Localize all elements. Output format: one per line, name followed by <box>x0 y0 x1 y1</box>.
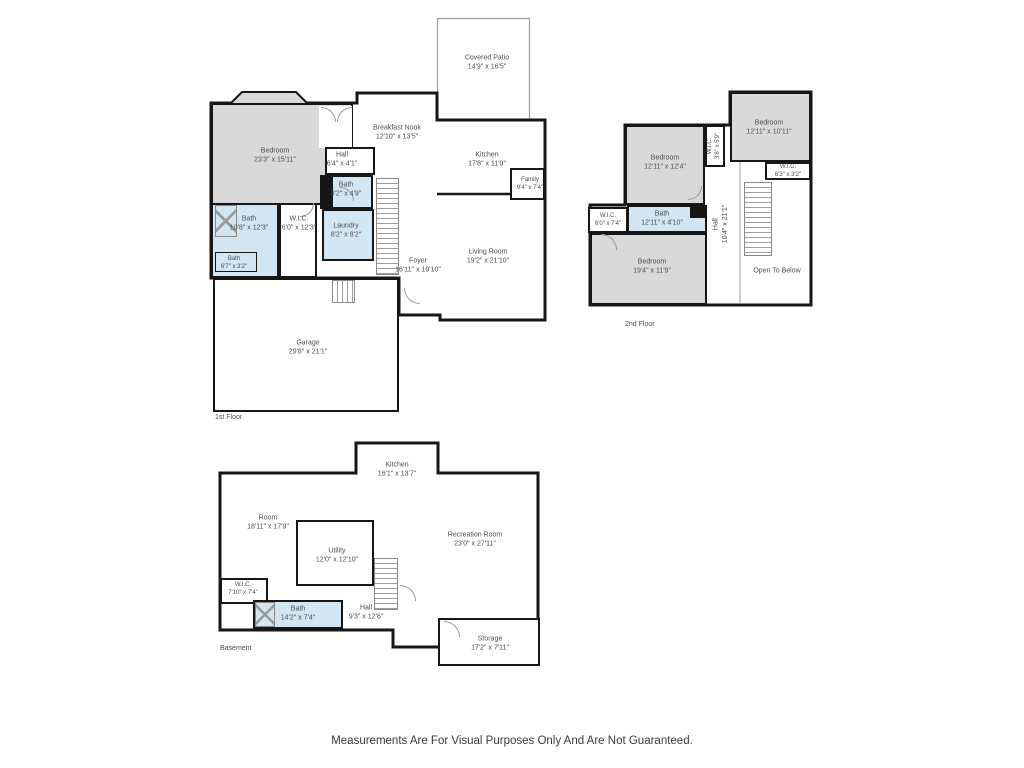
disclaimer-text: Measurements Are For Visual Purposes Onl… <box>0 735 1024 747</box>
floor-label-2nd: 2nd Floor <box>625 321 655 328</box>
label-utility-b: Utility 12'0" x 12'10" <box>316 547 358 566</box>
label-living-room-1f: Living Room 19'2" x 21'10" <box>467 248 509 267</box>
label-hall-2f: Hall 10'4" x 21'1" <box>712 205 731 243</box>
stairs-2f <box>744 182 772 256</box>
label-bedroom-c-2f: Bedroom 19'4" x 11'9" <box>633 258 671 277</box>
label-bath-main-1f: Bath 10'8" x 12'3" <box>230 215 268 234</box>
label-foyer-1f: Foyer 16'11" x 19'10" <box>395 257 441 276</box>
stairs-basement <box>374 558 398 610</box>
label-room-b: Room 18'11" x 17'9" <box>247 514 289 533</box>
label-bath-b: Bath 14'2" x 7'4" <box>281 605 316 624</box>
label-hall-b: Hall 9'3" x 12'6" <box>349 604 384 623</box>
label-wic-1f: W.I.C. 6'0" x 12'3" <box>282 215 317 234</box>
label-kitchen-b: Kitchen 16'1" x 13'7" <box>378 461 416 480</box>
label-bath-2f: Bath 12'11" x 4'10" <box>641 210 683 229</box>
label-wic-vert-2f: W.I.C. 3'8" x 5'9" <box>706 133 722 159</box>
label-garage-1f: Garage 29'8" x 21'1" <box>289 339 327 358</box>
label-bedroom-a-2f: Bedroom 12'11" x 12'4" <box>644 154 686 173</box>
label-bedroom-1f: Bedroom 23'3" x 15'11" <box>254 147 296 166</box>
label-laundry-1f: Laundry 8'2" x 8'2" <box>331 222 362 241</box>
label-hall-1f: Hall 6'4" x 4'1" <box>327 151 358 170</box>
floorplan-canvas: Covered Patio 14'9" x 16'5" Bedroom 23'3… <box>0 0 1024 768</box>
label-breakfast-nook: Breakfast Nook 12'10" x 13'5" <box>373 124 421 143</box>
label-wic-c-2f: W.I.C. 6'0" x 7'4" <box>595 212 621 228</box>
label-kitchen-1f: Kitchen 17'8" x 11'9" <box>468 151 506 170</box>
floor-label-1st: 1st Floor <box>215 414 242 421</box>
wall-block-2f <box>690 205 707 218</box>
label-bedroom-b-2f: Bedroom 12'11" x 10'11" <box>746 119 791 138</box>
label-covered-patio: Covered Patio 14'9" x 16'5" <box>465 54 509 73</box>
label-storage-b: Storage 17'2" x 7'11" <box>471 635 509 654</box>
shower-basement <box>255 602 275 627</box>
label-family-1f: Family 9'4" x 7'4" <box>517 176 543 192</box>
label-recreation-b: Recreation Room 23'0" x 27'11" <box>448 531 502 550</box>
floor-label-basement: Basement <box>220 645 252 652</box>
label-wic-b-2f: W.I.C. 6'3" x 3'2" <box>775 163 801 179</box>
label-open-to-below: Open To Below <box>753 266 800 275</box>
label-bath-small-1f: Bath 6'7" x 3'2" <box>221 255 247 271</box>
label-bath-upper-1f: Bath 8'2" x 4'9" <box>331 181 362 200</box>
garage-steps <box>332 280 355 303</box>
label-wic-b: W.I.C. 7'10" x 7'4" <box>228 581 258 597</box>
